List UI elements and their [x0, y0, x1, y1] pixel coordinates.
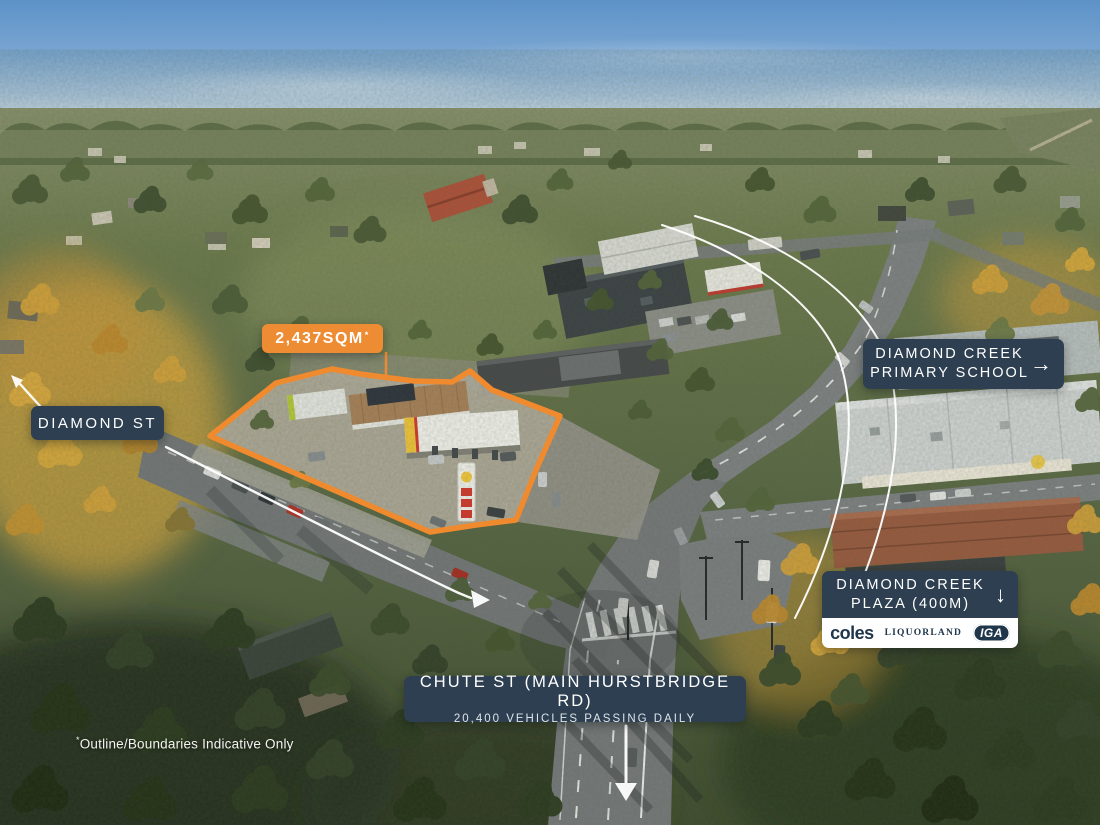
down-arrow-icon: ↓ [995, 584, 1008, 606]
plaza-line2: PLAZA (400M) [851, 596, 970, 612]
site-area-asterisk: * [365, 330, 370, 340]
plaza-line1: DIAMOND CREEK [836, 577, 984, 593]
coles-logo: coles [830, 623, 874, 644]
plaza-label: DIAMOND CREEK PLAZA (400M) ↓ coles LIQUO… [822, 571, 1018, 648]
road-name: CHUTE ST (MAIN HURSTBRIDGE RD) [404, 673, 746, 711]
school-line2: PRIMARY SCHOOL [870, 365, 1029, 381]
main-road-label: CHUTE ST (MAIN HURSTBRIDGE RD) 20,400 VE… [404, 676, 746, 722]
right-arrow-icon: → [1030, 353, 1054, 375]
site-area-label: 2,437SQM* [262, 324, 383, 353]
liquorland-logo: LIQUORLAND [885, 628, 962, 638]
school-line1: DIAMOND CREEK [875, 346, 1023, 362]
iga-logo: IGA [973, 624, 1010, 642]
diamond-st-label: DIAMOND ST [31, 406, 164, 440]
disclaimer-text: *Outline/Boundaries Indicative Only [76, 735, 294, 752]
plaza-logo-strip: coles LIQUORLAND IGA [822, 618, 1018, 648]
disclaimer-body: Outline/Boundaries Indicative Only [80, 737, 294, 752]
site-area-value: 2,437SQM [275, 330, 363, 348]
diamond-st-text: DIAMOND ST [38, 415, 157, 432]
road-traffic-count: 20,400 VEHICLES PASSING DAILY [454, 713, 696, 725]
aerial-photo: 2,437SQM* DIAMOND ST DIAMOND CREEK PRIMA… [0, 0, 1100, 825]
primary-school-label: DIAMOND CREEK PRIMARY SCHOOL → [863, 339, 1064, 389]
